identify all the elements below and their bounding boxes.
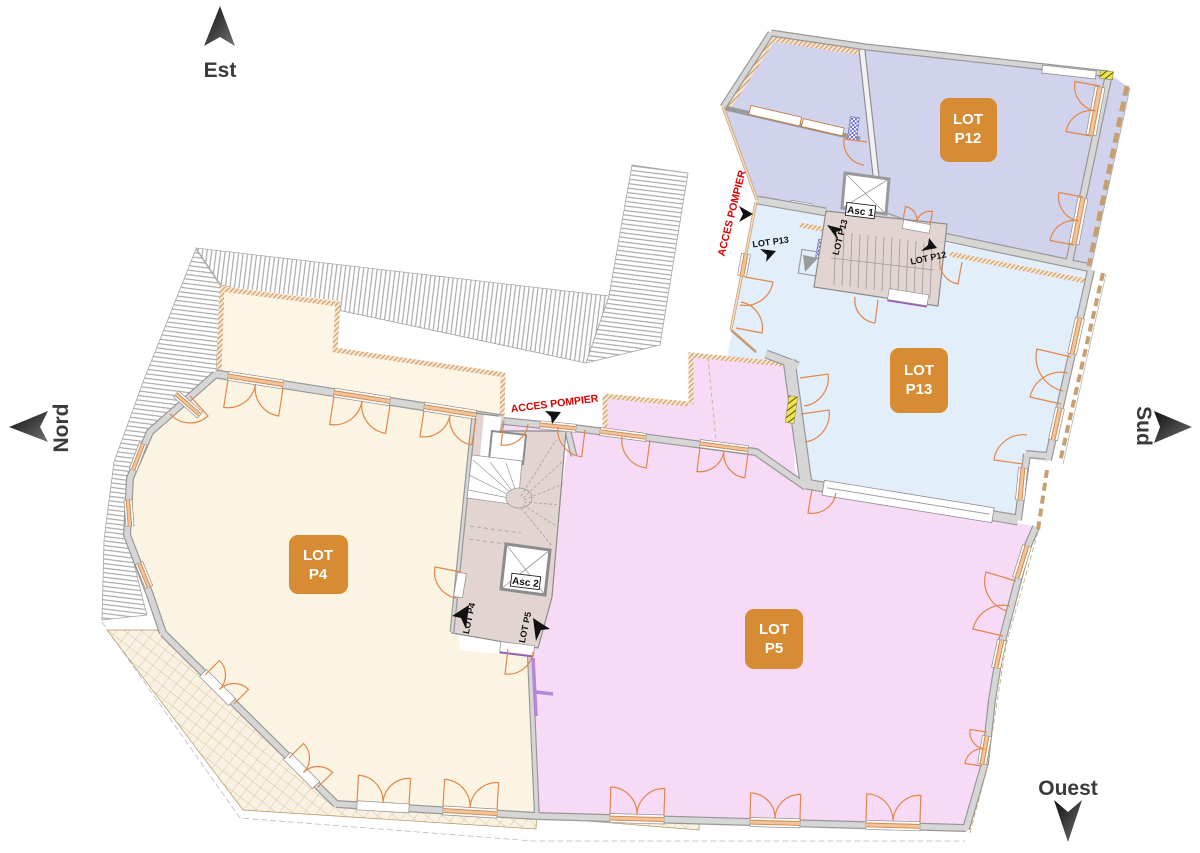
svg-text:P4: P4 (309, 566, 328, 583)
svg-text:P13: P13 (906, 381, 933, 398)
svg-text:P5: P5 (765, 640, 783, 657)
svg-text:Nord: Nord (50, 404, 73, 453)
svg-text:Sud: Sud (1132, 406, 1155, 446)
svg-text:LOT: LOT (904, 362, 934, 379)
svg-text:LOT: LOT (953, 111, 983, 128)
svg-text:Ouest: Ouest (1038, 777, 1098, 800)
svg-text:Est: Est (204, 59, 237, 82)
svg-text:LOT: LOT (303, 547, 333, 564)
svg-text:LOT: LOT (759, 621, 789, 638)
svg-text:P12: P12 (955, 130, 982, 147)
